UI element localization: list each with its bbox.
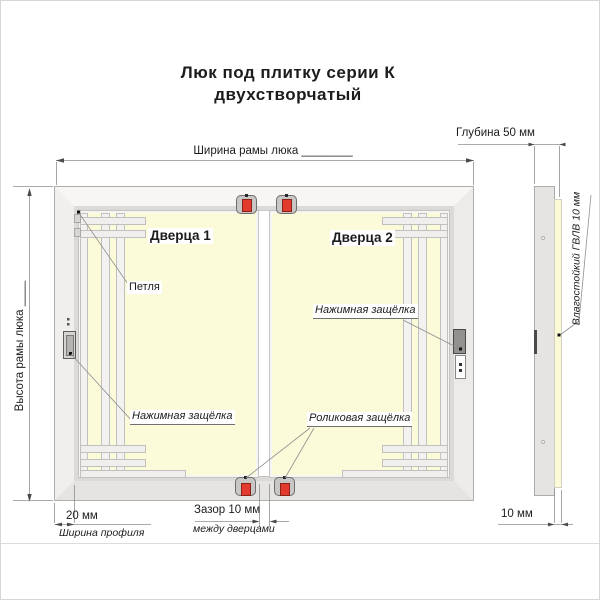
door1-bottom-rail-3 bbox=[80, 470, 186, 478]
door1-inner-profile-2 bbox=[116, 213, 125, 475]
door2-inner-profile-1 bbox=[418, 213, 427, 475]
door-gap-caption-label: между дверцами bbox=[193, 523, 275, 535]
profile-width-value-label: 20 мм bbox=[66, 510, 98, 523]
profile-width-caption-label: Ширина профиля bbox=[59, 527, 144, 539]
side-view-hole-top bbox=[541, 236, 545, 240]
door2-inner-profile-2 bbox=[403, 213, 412, 475]
door1-top-rail-1 bbox=[80, 217, 146, 225]
panel-thickness-label: 10 мм bbox=[501, 508, 533, 521]
door2-edge-profile bbox=[440, 213, 448, 475]
door2-push-latch-callout-label: Нажимная защёлка bbox=[313, 304, 418, 319]
depth-dimension-label: Глубина 50 мм bbox=[456, 127, 535, 140]
hinge-callout-label: Петля bbox=[127, 281, 162, 294]
door1-inner-profile-1 bbox=[101, 213, 110, 475]
roller-latch-icon-top-left bbox=[236, 195, 257, 214]
door2-bottom-rail-2 bbox=[382, 459, 448, 467]
door2-bottom-rail-1 bbox=[382, 445, 448, 453]
push-latch-keeper-door2 bbox=[455, 355, 466, 379]
door1-push-latch-callout-label: Нажимная защёлка bbox=[130, 410, 235, 425]
door1-top-rail-2 bbox=[80, 230, 146, 238]
side-view-hole-bottom bbox=[541, 440, 545, 444]
door1-bottom-rail-1 bbox=[80, 445, 146, 453]
drawing-title-line2: двухстворчатый bbox=[1, 85, 575, 105]
push-latch-icon-door2 bbox=[453, 329, 466, 354]
roller-latch-icon-top-right bbox=[276, 195, 297, 214]
door1-edge-profile bbox=[80, 213, 88, 475]
drawing-title-line1: Люк под плитку серии К bbox=[1, 63, 575, 83]
roller-latch-callout-label: Роликовая защёлка bbox=[307, 412, 412, 427]
drawing-canvas: Люк под плитку серии К двухстворчатый bbox=[0, 0, 600, 600]
push-latch-icon-door1 bbox=[63, 331, 76, 359]
hinge-tab-bottom bbox=[74, 228, 81, 237]
door2-bottom-rail-3 bbox=[342, 470, 448, 478]
door2-label: Дверца 2 bbox=[330, 230, 395, 246]
side-view-latch-edge bbox=[534, 330, 537, 354]
door1-label: Дверца 1 bbox=[148, 228, 213, 244]
frame-width-dimension-label: Ширина рамы люка ________ bbox=[181, 145, 365, 158]
door2-top-rail-1 bbox=[382, 217, 448, 225]
door-gap-value-label: Зазор 10 мм bbox=[194, 504, 260, 517]
side-view-gvl-panel bbox=[554, 199, 562, 488]
door1-bottom-rail-2 bbox=[80, 459, 146, 467]
roller-latch-icon-bottom-right bbox=[274, 477, 295, 496]
side-view-frame-profile bbox=[534, 186, 555, 496]
hinge-tab-top bbox=[74, 214, 81, 223]
gvl-panel-callout-label: Влагостойкий ГВЛВ 10 мм bbox=[571, 184, 586, 334]
frame-height-dimension-label: Высота рамы люка ____ bbox=[14, 196, 30, 496]
roller-latch-icon-bottom-left bbox=[235, 477, 256, 496]
